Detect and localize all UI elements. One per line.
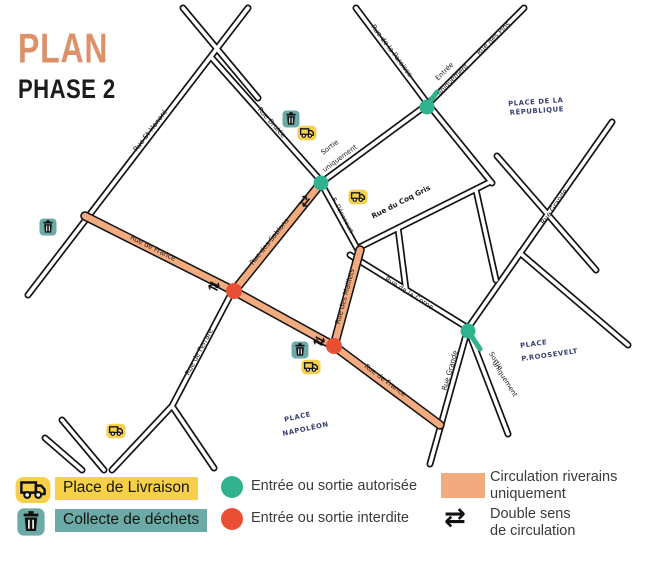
page-subtitle: PHASE 2 (18, 76, 116, 103)
legend-label-autorisee: Entrée ou sortie autorisée (251, 478, 417, 495)
legend-double-sens-arrow-icon: ⇄ (444, 508, 466, 528)
street-label-france-east: Rue de France (363, 362, 408, 398)
delivery-truck-icon (348, 190, 367, 204)
legend-forbidden-dot (221, 508, 243, 530)
delivery-truck-icon (301, 360, 320, 374)
legend-label-livraison: Place de Livraison (55, 477, 198, 500)
legend-residents-swatch (441, 473, 485, 498)
trash-bin-icon (283, 111, 300, 128)
delivery-truck-icon (106, 424, 125, 438)
place-label-roosevelt: P.ROOSEVELT (521, 347, 579, 363)
legend-delivery-truck-icon (8, 470, 58, 510)
legend-label-double-sens-line2: de circulation (490, 523, 575, 540)
legend-label-riverains-line1: Circulation riverains (490, 469, 617, 486)
street-label-sablons: Rue des Sablons (248, 217, 291, 267)
street-label-pins: Rue des Pins (475, 20, 512, 57)
residents-only-streets-surface (85, 182, 440, 425)
legend-trash-bin-icon (15, 506, 47, 538)
trash-bin-icon (292, 342, 309, 359)
street-label-france-west: Rue de France (129, 234, 177, 263)
forbidden-entry-marker (226, 283, 242, 299)
legend-item-livraison: Place de Livraison (55, 477, 198, 500)
legend-label-riverains: Circulation riverains uniquement (490, 469, 617, 503)
plan-page: ⇄ ⇄ ⇄ Rue St-Honoré Rue Brulée Rue de la… (0, 0, 659, 566)
street-label-brulee: Rue Brulée (256, 106, 287, 140)
legend-label-double-sens: Double sens de circulation (490, 506, 575, 540)
place-label-roosevelt: PLACE (520, 338, 548, 350)
street-label-paroisse: Rue de la Paroisse (369, 23, 414, 79)
place-label-napoleon: PLACE (283, 410, 311, 423)
title-block: PLAN PHASE 2 (18, 28, 137, 103)
street-label-corne: Rue de la Corne (383, 275, 434, 311)
legend-label-dechets: Collecte de déchets (55, 509, 207, 532)
delivery-truck-icon (297, 126, 316, 140)
legend: Place de Livraison Collecte de déchets E… (0, 466, 659, 566)
note-sortie-uniquement: Sortie (319, 138, 340, 156)
street-label-st-honore: Rue St-Honoré (132, 108, 169, 153)
street-label-ferrare: Rue de Ferrare (184, 327, 215, 376)
allowed-entry-marker (314, 176, 329, 191)
legend-allowed-dot (221, 476, 243, 498)
legend-item-dechets: Collecte de déchets (55, 509, 207, 532)
trash-bin-icon (40, 219, 57, 236)
allowed-entry-marker (461, 324, 476, 339)
forbidden-entry-marker (326, 338, 342, 354)
allowed-entry-marker (420, 100, 435, 115)
legend-label-riverains-line2: uniquement (490, 486, 617, 503)
legend-label-interdite: Entrée ou sortie interdite (251, 510, 409, 527)
legend-label-double-sens-line1: Double sens (490, 506, 575, 523)
page-title: PLAN (18, 28, 113, 70)
